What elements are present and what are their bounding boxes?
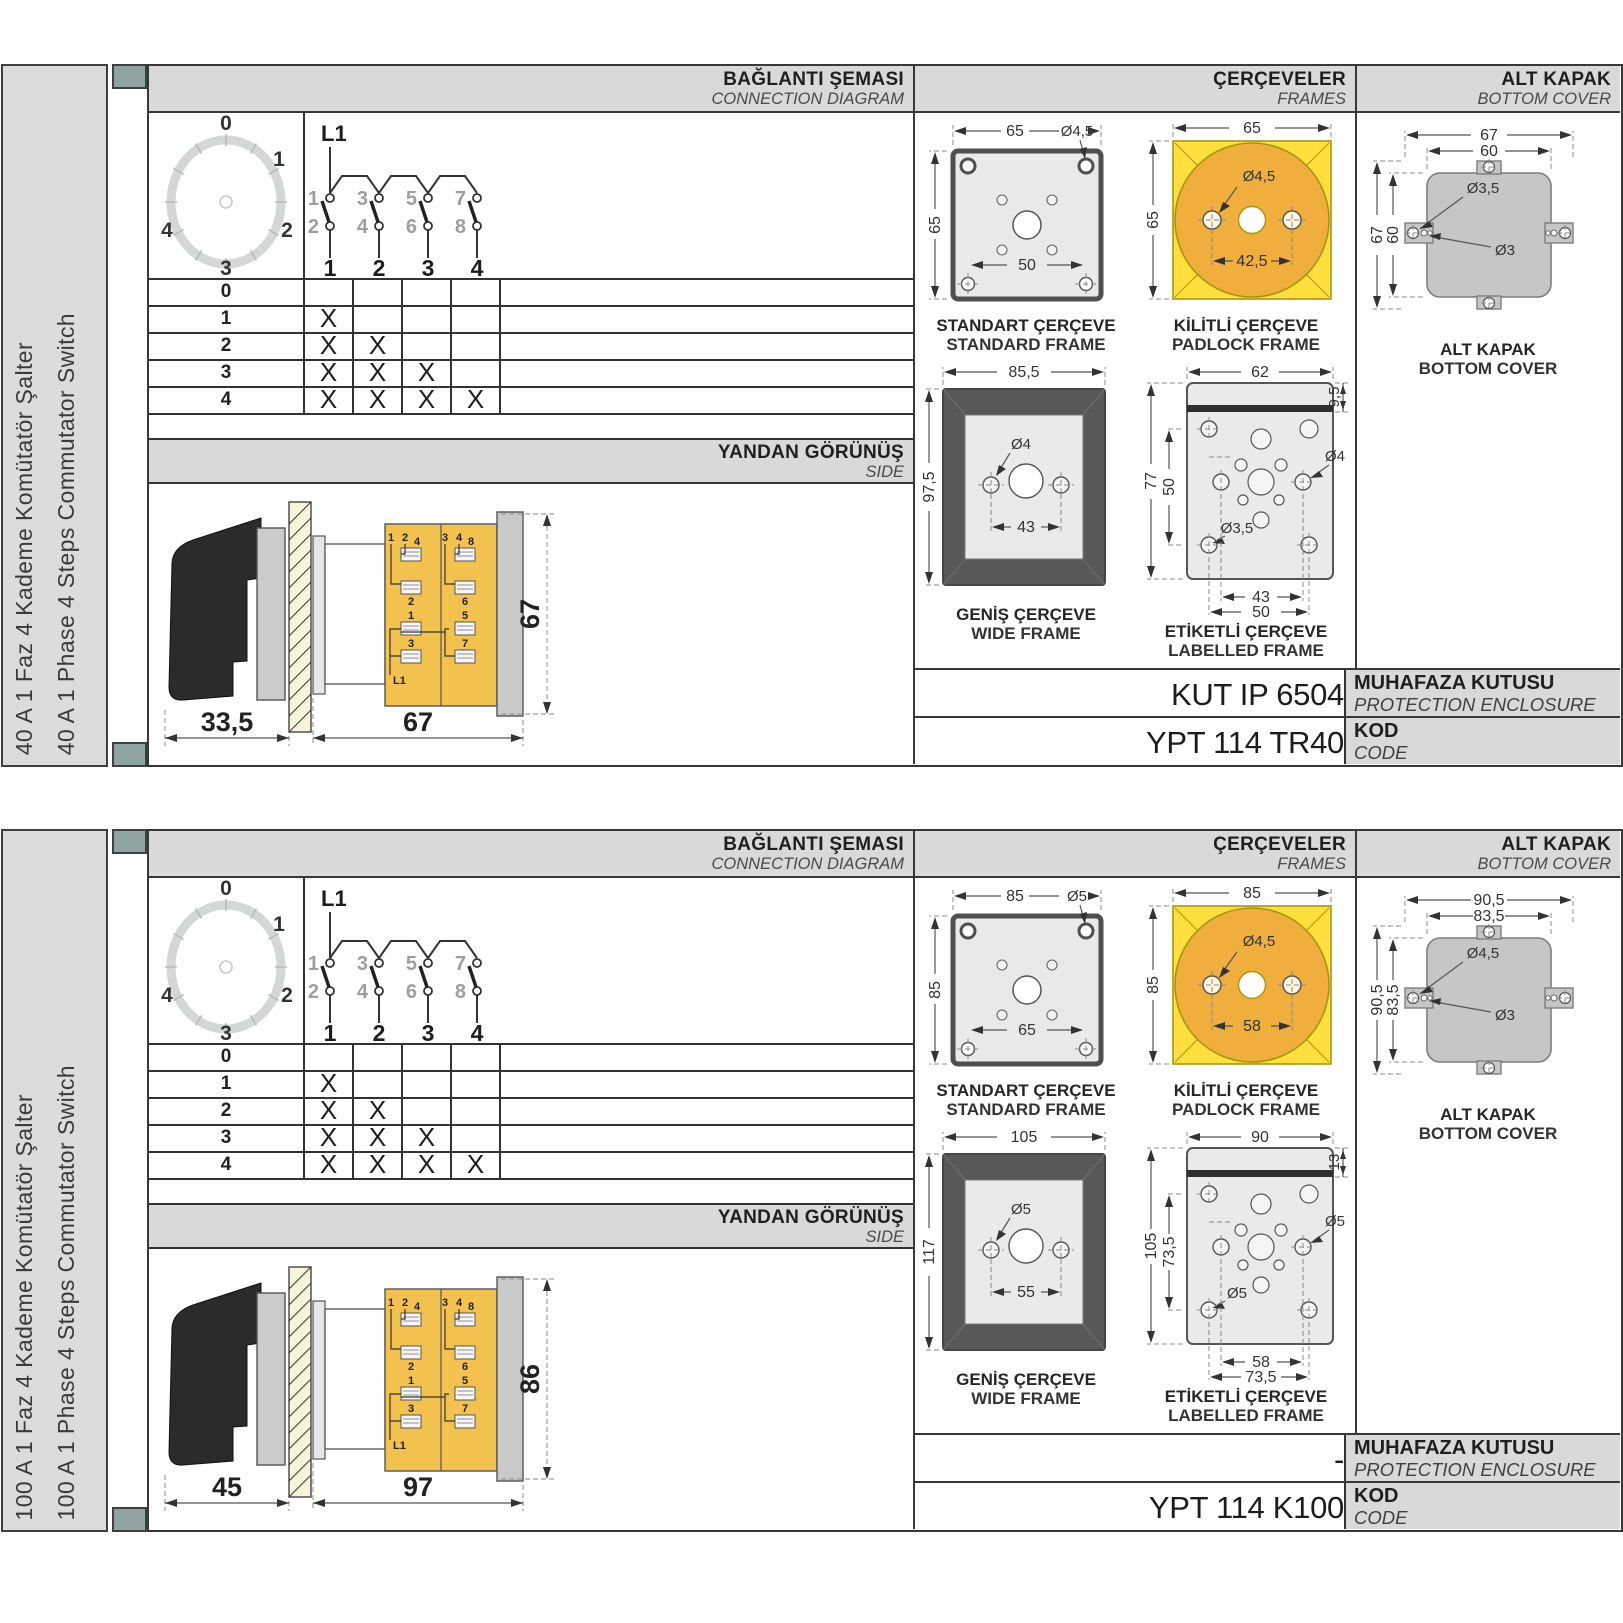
- std-width-dim: 65: [1006, 123, 1024, 140]
- lab-width-dim: 90: [1251, 1129, 1269, 1146]
- standard-frame-title-tr: STANDART ÇERÇEVE: [917, 1081, 1135, 1100]
- mark-cell: [403, 334, 452, 359]
- side-term-label: 7: [462, 1403, 468, 1415]
- wide-frame-title-tr: GENİŞ ÇERÇEVE: [917, 1370, 1135, 1389]
- row-position: 4: [149, 388, 305, 413]
- padlock-frame-block: 85 85 Ø4,5 58 KİLİTLİ ÇERÇEVE PADLOCK FR…: [1137, 880, 1355, 1119]
- mark-cell: X: [354, 1099, 403, 1124]
- side-view-title-tr: YANDAN GÖRÜNÜŞ: [149, 442, 904, 463]
- dial-pos-3: 3: [220, 257, 232, 278]
- switch-position-dial: 0 1 2 3 4: [149, 878, 303, 1043]
- dial-pos-0: 0: [220, 113, 232, 135]
- mark-cell: X: [354, 1126, 403, 1151]
- cover-hole1-dim: Ø3,5: [1467, 180, 1500, 197]
- spine-marker-top: [112, 829, 147, 854]
- product-sidebar: 100 A 1 Faz 4 Kademe Komütatör Şalter 10…: [1, 829, 108, 1532]
- mark-cell: X: [403, 388, 452, 413]
- lab-pitch2-dim: 73,5: [1245, 1369, 1276, 1386]
- side-handle-dim: 45: [212, 1472, 242, 1502]
- table-row: 2 X X: [149, 1099, 913, 1126]
- dial-pos-1: 1: [273, 913, 285, 936]
- contact-1: 1: [308, 953, 319, 975]
- contact-6: 6: [406, 981, 417, 1003]
- padlock-frame-block: 65 65 Ø4,5 42,5 KİLİTLİ ÇERÇEVE PADLOCK …: [1137, 115, 1355, 354]
- lab-height-dim: 105: [1143, 1233, 1160, 1260]
- bottom-cover-area: 90,5 83,5 90,5 83,5 Ø4,5 Ø3 ALT KA: [1357, 878, 1620, 1433]
- side-term-label: 3: [442, 532, 448, 544]
- circuit-cell: L1 1: [305, 878, 913, 1045]
- side-term-label: 5: [462, 610, 468, 622]
- datasheet-panel: BAĞLANTI ŞEMASI CONNECTION DIAGRAM ÇERÇE…: [147, 64, 1623, 767]
- contact-4: 4: [357, 981, 369, 1003]
- contact-8: 8: [455, 981, 466, 1003]
- std-height-dim: 65: [927, 216, 944, 234]
- mark-cell: [403, 1099, 452, 1124]
- header-frames: ÇERÇEVELER FRAMES: [915, 831, 1357, 878]
- wide-frame-block: 105 117 Ø5 55 GENİŞ ÇERÇEVE WIDE FRAME: [917, 1124, 1135, 1408]
- lab-inner-height-dim: 50: [1161, 478, 1178, 496]
- wide-pitch-dim: 55: [1017, 1284, 1035, 1301]
- std-hole-dim: Ø4,5: [1061, 123, 1094, 140]
- code-label-tr: KOD: [1354, 1485, 1620, 1507]
- enclosure-label: MUHAFAZA KUTUSU PROTECTION ENCLOSURE: [1344, 670, 1620, 716]
- mark-cell: X: [403, 1153, 452, 1178]
- std-height-dim: 85: [927, 981, 944, 999]
- mark-cell: X: [354, 388, 403, 413]
- padlock-frame-title-en: PADLOCK FRAME: [1137, 335, 1355, 354]
- spine-marker-bottom: [112, 1507, 147, 1532]
- bottom-cover-area: 67 60 67 60 Ø3,5 Ø3 ALT KAPAK: [1357, 113, 1620, 668]
- output-3: 3: [422, 1020, 435, 1043]
- std-hole-dim: Ø5: [1067, 888, 1087, 905]
- circuit-cell: L1 1: [305, 113, 913, 280]
- side-term-label: 7: [462, 638, 468, 650]
- side-height-dim: 67: [515, 599, 545, 629]
- product-code-label: KOD CODE: [1344, 718, 1620, 764]
- cover-inner-height-dim: 60: [1385, 226, 1402, 244]
- lab-top-dim: 13: [1326, 1154, 1343, 1171]
- product-code-row: YPT 114 TR40 KOD CODE: [915, 716, 1620, 764]
- side-term-label: 4: [456, 1297, 463, 1309]
- std-width-dim: 85: [1006, 888, 1024, 905]
- lab-height-dim: 77: [1143, 472, 1160, 490]
- contact-5: 5: [406, 953, 417, 975]
- enclosure-label-tr: MUHAFAZA KUTUSU: [1354, 1437, 1620, 1459]
- product-sidebar: 40 A 1 Faz 4 Kademe Komütatör Şalter 40 …: [1, 64, 108, 767]
- cover-outer-width-dim: 67: [1480, 127, 1498, 144]
- switch-position-dial: 0 1 2 3 4: [149, 113, 303, 278]
- side-term-label: 1: [388, 1297, 394, 1309]
- connection-diagram-area: 0 1 2 3 4 L1: [149, 878, 915, 1529]
- header-connection-diagram: BAĞLANTI ŞEMASI CONNECTION DIAGRAM: [149, 66, 915, 113]
- product-section: 40 A 1 Faz 4 Kademe Komütatör Şalter 40 …: [0, 64, 1623, 767]
- bottom-cover-caption-en: BOTTOM COVER: [1363, 1124, 1613, 1143]
- standard-frame-title-en: STANDARD FRAME: [917, 335, 1135, 354]
- dial-pos-0: 0: [220, 878, 232, 900]
- labelled-frame-block: 90 13 105 73,5 Ø5 Ø5: [1137, 1124, 1355, 1425]
- cover-inner-height-dim: 83,5: [1385, 984, 1402, 1015]
- product-code-value: YPT 114 K100: [915, 1483, 1344, 1529]
- padlock-frame-title-tr: KİLİTLİ ÇERÇEVE: [1137, 316, 1355, 335]
- wide-height-dim: 97,5: [921, 471, 938, 502]
- pad-pitch-dim: 58: [1243, 1018, 1261, 1035]
- row-position: 3: [149, 361, 305, 386]
- contact-1: 1: [308, 188, 319, 210]
- contact-7: 7: [455, 953, 466, 975]
- labelled-frame-drawing: 62 9,5 77 50 Ø4 Ø3,5: [1137, 359, 1352, 621]
- product-code-row: YPT 114 K100 KOD CODE: [915, 1481, 1620, 1529]
- output-3: 3: [422, 255, 435, 278]
- side-view-header: YANDAN GÖRÜNÜŞ SIDE: [149, 1203, 913, 1249]
- mark-cell: X: [403, 361, 452, 386]
- header-frames: ÇERÇEVELER FRAMES: [915, 66, 1357, 113]
- spine-marker-bottom: [112, 742, 147, 767]
- mark-cell: X: [354, 334, 403, 359]
- side-term-label: 5: [462, 1375, 468, 1387]
- output-1: 1: [324, 255, 337, 278]
- contact-3: 3: [357, 953, 368, 975]
- row-position: 3: [149, 1126, 305, 1151]
- dial-pos-3: 3: [220, 1022, 232, 1043]
- wide-frame-drawing: 105 117 Ø5 55: [917, 1124, 1122, 1369]
- enclosure-label: MUHAFAZA KUTUSU PROTECTION ENCLOSURE: [1344, 1435, 1620, 1481]
- header-frames-tr: ÇERÇEVELER: [915, 834, 1346, 855]
- enclosure-row: KUT IP 6504 MUHAFAZA KUTUSU PROTECTION E…: [915, 668, 1620, 716]
- standard-frame-drawing: 85 Ø5 85 65: [917, 880, 1127, 1080]
- product-title-turkish: 40 A 1 Faz 4 Kademe Komütatör Şalter: [11, 342, 38, 755]
- row-position: 0: [149, 280, 305, 305]
- mark-cell: X: [305, 334, 354, 359]
- wide-pitch-dim: 43: [1017, 519, 1035, 536]
- table-row: 3 X X X: [149, 1126, 913, 1153]
- lab-inner-height-dim: 73,5: [1161, 1236, 1178, 1267]
- mark-cell: [305, 280, 354, 305]
- standard-frame-title-tr: STANDART ÇERÇEVE: [917, 316, 1135, 335]
- table-row: 0: [149, 280, 913, 307]
- lab-hole-right-dim: Ø4: [1325, 448, 1345, 465]
- header-connection-tr: BAĞLANTI ŞEMASI: [149, 69, 904, 90]
- contact-6: 6: [406, 216, 417, 238]
- contact-7: 7: [455, 188, 466, 210]
- side-view-title-en: SIDE: [149, 463, 904, 482]
- product-title-turkish: 100 A 1 Faz 4 Kademe Komütatör Şalter: [11, 1094, 38, 1521]
- side-term-label: 3: [408, 638, 414, 650]
- standard-frame-block: 85 Ø5 85 65 STANDART ÇERÇEVE STANDARD FR…: [917, 880, 1135, 1119]
- mark-cell: X: [354, 1153, 403, 1178]
- std-pitch-dim: 65: [1018, 1022, 1036, 1039]
- output-1: 1: [324, 1020, 337, 1043]
- cover-inner-width-dim: 83,5: [1473, 908, 1504, 925]
- lab-pitch2-dim: 50: [1252, 604, 1270, 621]
- mark-cell: [403, 280, 452, 305]
- mark-cell: [452, 361, 501, 386]
- wide-hole-dim: Ø5: [1011, 1201, 1031, 1218]
- output-4: 4: [471, 1020, 484, 1043]
- wide-frame-title-en: WIDE FRAME: [917, 624, 1135, 643]
- frames-area: 85 Ø5 85 65 STANDART ÇERÇEVE STANDARD FR…: [915, 878, 1357, 1433]
- wide-frame-title-en: WIDE FRAME: [917, 1389, 1135, 1408]
- mark-cell: X: [403, 1126, 452, 1151]
- header-connection-tr: BAĞLANTI ŞEMASI: [149, 834, 904, 855]
- row-position: 1: [149, 1072, 305, 1097]
- table-row: 2 X X: [149, 334, 913, 361]
- wide-frame-title-tr: GENİŞ ÇERÇEVE: [917, 605, 1135, 624]
- mark-cell: X: [305, 1126, 354, 1151]
- contact-8: 8: [455, 216, 466, 238]
- side-view-title-en: SIDE: [149, 1228, 904, 1247]
- header-connection-diagram: BAĞLANTI ŞEMASI CONNECTION DIAGRAM: [149, 831, 915, 878]
- bottom-cover-drawing: 67 60 67 60 Ø3,5 Ø3: [1363, 127, 1613, 339]
- padlock-frame-drawing: 65 65 Ø4,5 42,5: [1137, 115, 1347, 315]
- code-label-tr: KOD: [1354, 720, 1620, 742]
- mark-cell: [354, 307, 403, 332]
- labelled-frame-title-tr: ETİKETLİ ÇERÇEVE: [1137, 622, 1355, 641]
- contact-4: 4: [357, 216, 369, 238]
- output-2: 2: [373, 1020, 386, 1043]
- spine-marker-top: [112, 64, 147, 89]
- mark-cell: X: [452, 388, 501, 413]
- dial-pos-2: 2: [281, 984, 293, 1007]
- side-term-label: 1: [408, 610, 414, 622]
- side-term-label: 4: [414, 1301, 421, 1313]
- side-depth-dim: 67: [403, 707, 433, 737]
- side-view-drawing: 1 2 3 4 4 2 1 3 8 6 5 7 L1: [149, 1249, 909, 1527]
- pad-width-dim: 65: [1243, 120, 1261, 137]
- mark-cell: X: [354, 361, 403, 386]
- mark-cell: X: [452, 1153, 501, 1178]
- enclosure-code-value: -: [915, 1435, 1344, 1481]
- labelled-frame-title-tr: ETİKETLİ ÇERÇEVE: [1137, 1387, 1355, 1406]
- dial-pos-1: 1: [273, 148, 285, 171]
- dial-pos-2: 2: [281, 219, 293, 242]
- contact-2: 2: [308, 981, 319, 1003]
- padlock-frame-drawing: 85 85 Ø4,5 58: [1137, 880, 1347, 1080]
- cover-outer-width-dim: 90,5: [1473, 892, 1504, 909]
- header-frames-en: FRAMES: [915, 90, 1346, 109]
- mark-cell: [354, 1045, 403, 1070]
- wide-height-dim: 117: [921, 1239, 938, 1265]
- table-row: 3 X X X: [149, 361, 913, 388]
- header-connection-en: CONNECTION DIAGRAM: [149, 855, 904, 874]
- header-bottom-cover: ALT KAPAK BOTTOM COVER: [1357, 66, 1620, 113]
- mark-cell: [305, 1045, 354, 1070]
- code-label-en: CODE: [1354, 742, 1620, 763]
- header-row: BAĞLANTI ŞEMASI CONNECTION DIAGRAM ÇERÇE…: [149, 831, 1620, 878]
- bottom-cover-caption-tr: ALT KAPAK: [1363, 1105, 1613, 1124]
- contact-5: 5: [406, 188, 417, 210]
- product-title-english: 100 A 1 Phase 4 Steps Commutator Switch: [53, 1065, 80, 1520]
- product-code-value: YPT 114 TR40: [915, 718, 1344, 764]
- catalog-page: 40 A 1 Faz 4 Kademe Komütatör Şalter 40 …: [0, 0, 1623, 1623]
- header-frames-tr: ÇERÇEVELER: [915, 69, 1346, 90]
- datasheet-panel: BAĞLANTI ŞEMASI CONNECTION DIAGRAM ÇERÇE…: [147, 829, 1623, 1532]
- cover-outer-height-dim: 90,5: [1369, 984, 1386, 1015]
- bottom-cover-caption-en: BOTTOM COVER: [1363, 359, 1613, 378]
- circuit-line-label: L1: [321, 886, 347, 911]
- bottom-cover-drawing: 90,5 83,5 90,5 83,5 Ø4,5 Ø3: [1363, 892, 1613, 1104]
- standard-frame-drawing: 65 Ø4,5 65 50: [917, 115, 1127, 315]
- side-term-label: 2: [402, 1297, 408, 1309]
- row-position: 4: [149, 1153, 305, 1178]
- bottom-cover-block: 90,5 83,5 90,5 83,5 Ø4,5 Ø3 ALT KA: [1363, 892, 1613, 1143]
- pad-height-dim: 85: [1145, 976, 1162, 994]
- mark-cell: [452, 1126, 501, 1151]
- padlock-frame-title-tr: KİLİTLİ ÇERÇEVE: [1137, 1081, 1355, 1100]
- side-term-label: 3: [408, 1403, 414, 1415]
- side-view-header: YANDAN GÖRÜNÜŞ SIDE: [149, 438, 913, 484]
- header-bottom-cover: ALT KAPAK BOTTOM COVER: [1357, 831, 1620, 878]
- cover-hole2-dim: Ø3: [1495, 242, 1515, 259]
- std-pitch-dim: 50: [1018, 257, 1036, 274]
- side-term-label: 8: [468, 1301, 474, 1313]
- pad-height-dim: 65: [1145, 211, 1162, 229]
- labelled-frame-title-en: LABELLED FRAME: [1137, 641, 1355, 660]
- wide-frame-drawing: 85,5 97,5 Ø4 43: [917, 359, 1122, 604]
- cover-outer-height-dim: 67: [1369, 226, 1386, 244]
- side-term-label: 2: [408, 596, 414, 608]
- enclosure-row: - MUHAFAZA KUTUSU PROTECTION ENCLOSURE: [915, 1433, 1620, 1481]
- mark-cell: [452, 334, 501, 359]
- side-view-title-tr: YANDAN GÖRÜNÜŞ: [149, 1207, 904, 1228]
- side-term-label: 8: [468, 536, 474, 548]
- labelled-frame-drawing: 90 13 105 73,5 Ø5 Ø5: [1137, 1124, 1352, 1386]
- code-label-en: CODE: [1354, 1507, 1620, 1528]
- pad-width-dim: 85: [1243, 885, 1261, 902]
- header-cover-en: BOTTOM COVER: [1357, 90, 1611, 109]
- product-section: 100 A 1 Faz 4 Kademe Komütatör Şalter 10…: [0, 829, 1623, 1532]
- mark-cell: X: [305, 1153, 354, 1178]
- lab-width-dim: 62: [1251, 364, 1269, 381]
- connection-diagram-area: 0 1 2 3 4 L1: [149, 113, 915, 764]
- row-position: 2: [149, 334, 305, 359]
- side-term-label: 1: [408, 1375, 414, 1387]
- wide-width-dim: 85,5: [1008, 364, 1039, 381]
- mark-cell: [452, 1099, 501, 1124]
- header-row: BAĞLANTI ŞEMASI CONNECTION DIAGRAM ÇERÇE…: [149, 66, 1620, 113]
- contact-3: 3: [357, 188, 368, 210]
- table-row: 4 X X X X: [149, 1153, 913, 1180]
- switch-dial-cell: 0 1 2 3 4: [149, 878, 305, 1045]
- wide-hole-dim: Ø4: [1011, 436, 1031, 453]
- mark-cell: [403, 307, 452, 332]
- side-view-drawing: 1 2 3 4 4 2 1 3 8 6 5 7 L1: [149, 484, 909, 762]
- side-handle-dim: 33,5: [201, 707, 254, 737]
- cover-inner-width-dim: 60: [1480, 143, 1498, 160]
- pad-hole-dim: Ø4,5: [1243, 168, 1276, 185]
- output-4: 4: [471, 255, 484, 278]
- side-height-dim: 86: [515, 1364, 545, 1394]
- lab-hole-left-dim: Ø3,5: [1221, 520, 1254, 537]
- labelled-frame-block: 62 9,5 77 50 Ø4 Ø3,5: [1137, 359, 1355, 660]
- lab-top-dim: 9,5: [1326, 387, 1343, 408]
- cover-hole1-dim: Ø4,5: [1467, 945, 1500, 962]
- header-cover-tr: ALT KAPAK: [1357, 834, 1611, 855]
- mark-cell: [403, 1072, 452, 1097]
- side-term-label: 6: [462, 596, 468, 608]
- mark-cell: [403, 1045, 452, 1070]
- table-row: 1 X: [149, 307, 913, 334]
- table-row: 0: [149, 1045, 913, 1072]
- wide-width-dim: 105: [1011, 1129, 1038, 1146]
- header-cover-tr: ALT KAPAK: [1357, 69, 1611, 90]
- product-title-english: 40 A 1 Phase 4 Steps Commutator Switch: [53, 313, 80, 755]
- switch-dial-cell: 0 1 2 3 4: [149, 113, 305, 280]
- mark-cell: X: [305, 361, 354, 386]
- enclosure-label-en: PROTECTION ENCLOSURE: [1354, 694, 1620, 715]
- side-term-label: 3: [442, 1297, 448, 1309]
- header-cover-en: BOTTOM COVER: [1357, 855, 1611, 874]
- header-connection-en: CONNECTION DIAGRAM: [149, 90, 904, 109]
- wide-frame-block: 85,5 97,5 Ø4 43 GENİŞ ÇERÇEVE WIDE FRAME: [917, 359, 1135, 643]
- row-position: 0: [149, 1045, 305, 1070]
- enclosure-label-en: PROTECTION ENCLOSURE: [1354, 1459, 1620, 1480]
- side-term-label: 4: [456, 532, 463, 544]
- side-term-label: 6: [462, 1361, 468, 1373]
- padlock-frame-title-en: PADLOCK FRAME: [1137, 1100, 1355, 1119]
- contact-2: 2: [308, 216, 319, 238]
- dial-pos-4: 4: [161, 219, 173, 242]
- output-2: 2: [373, 255, 386, 278]
- mark-cell: [452, 280, 501, 305]
- side-term-label: 2: [402, 532, 408, 544]
- dial-pos-4: 4: [161, 984, 173, 1007]
- table-row: 4 X X X X: [149, 388, 913, 415]
- standard-frame-block: 65 Ø4,5 65 50 STANDART ÇERÇEVE STANDARD …: [917, 115, 1135, 354]
- side-line-label: L1: [393, 675, 406, 687]
- side-term-label: 2: [408, 1361, 414, 1373]
- mark-cell: [452, 1045, 501, 1070]
- bottom-cover-block: 67 60 67 60 Ø3,5 Ø3 ALT KAPAK: [1363, 127, 1613, 378]
- mark-cell: X: [305, 307, 354, 332]
- lab-hole-right-dim: Ø5: [1325, 1213, 1345, 1230]
- mark-cell: X: [305, 1072, 354, 1097]
- header-frames-en: FRAMES: [915, 855, 1346, 874]
- row-position: 2: [149, 1099, 305, 1124]
- side-term-label: 1: [388, 532, 394, 544]
- pad-pitch-dim: 42,5: [1236, 253, 1267, 270]
- frames-area: 65 Ø4,5 65 50 STANDART ÇERÇEVE STANDARD …: [915, 113, 1357, 668]
- side-line-label: L1: [393, 1440, 406, 1452]
- side-depth-dim: 97: [403, 1472, 433, 1502]
- contact-circuit-diagram: L1 1: [305, 878, 911, 1043]
- pad-hole-dim: Ø4,5: [1243, 933, 1276, 950]
- lab-hole-left-dim: Ø5: [1227, 1285, 1247, 1302]
- mark-cell: [452, 307, 501, 332]
- mark-cell: [354, 1072, 403, 1097]
- bottom-cover-caption-tr: ALT KAPAK: [1363, 340, 1613, 359]
- enclosure-label-tr: MUHAFAZA KUTUSU: [1354, 672, 1620, 694]
- mark-cell: X: [305, 1099, 354, 1124]
- table-row: 1 X: [149, 1072, 913, 1099]
- product-code-label: KOD CODE: [1344, 1483, 1620, 1529]
- cover-hole2-dim: Ø3: [1495, 1007, 1515, 1024]
- labelled-frame-title-en: LABELLED FRAME: [1137, 1406, 1355, 1425]
- row-position: 1: [149, 307, 305, 332]
- mark-cell: [452, 1072, 501, 1097]
- contact-circuit-diagram: L1 1: [305, 113, 911, 278]
- standard-frame-title-en: STANDARD FRAME: [917, 1100, 1135, 1119]
- circuit-line-label: L1: [321, 121, 347, 146]
- mark-cell: X: [305, 388, 354, 413]
- enclosure-code-value: KUT IP 6504: [915, 670, 1344, 716]
- mark-cell: [354, 280, 403, 305]
- side-term-label: 4: [414, 536, 421, 548]
